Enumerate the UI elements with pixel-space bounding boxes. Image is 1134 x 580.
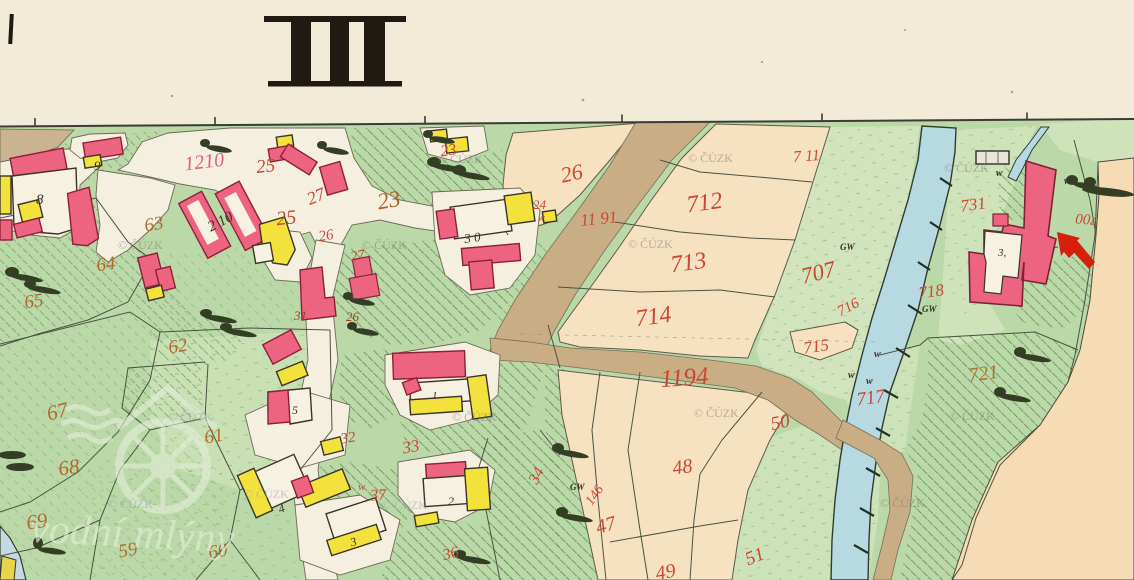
svg-text:5: 5 bbox=[292, 403, 298, 417]
svg-text:w: w bbox=[538, 213, 545, 224]
svg-text:© ČÚZK: © ČÚZK bbox=[244, 487, 289, 501]
svg-text:w: w bbox=[848, 370, 855, 381]
svg-text:49: 49 bbox=[654, 560, 678, 580]
svg-text:w: w bbox=[358, 481, 366, 493]
svg-text:© ČÚZK: © ČÚZK bbox=[880, 496, 925, 510]
svg-text:w: w bbox=[874, 349, 881, 360]
svg-text:713: 713 bbox=[669, 248, 708, 279]
svg-text:8: 8 bbox=[36, 192, 44, 208]
svg-text:© ČÚZK: © ČÚZK bbox=[118, 238, 163, 252]
svg-text:3,: 3, bbox=[997, 247, 1007, 259]
svg-text:712: 712 bbox=[685, 188, 724, 219]
svg-text:GW: GW bbox=[922, 304, 937, 314]
svg-text:3 0: 3 0 bbox=[462, 229, 482, 246]
svg-text:© ČÚZK: © ČÚZK bbox=[950, 409, 995, 423]
svg-text:26: 26 bbox=[346, 309, 360, 324]
svg-text:GW: GW bbox=[840, 242, 855, 252]
svg-text:24: 24 bbox=[533, 197, 547, 212]
svg-text:65: 65 bbox=[23, 290, 45, 313]
svg-text:31: 31 bbox=[293, 308, 307, 323]
svg-text:25: 25 bbox=[255, 155, 276, 178]
svg-text:2: 2 bbox=[448, 494, 454, 508]
svg-text:© ČÚZK: © ČÚZK bbox=[362, 238, 407, 252]
svg-text:33: 33 bbox=[400, 436, 421, 458]
svg-text:717: 717 bbox=[855, 386, 888, 411]
svg-text:w: w bbox=[996, 168, 1003, 179]
svg-text:1194: 1194 bbox=[659, 363, 709, 393]
svg-text:32: 32 bbox=[338, 429, 357, 448]
svg-text:© ČÚZK: © ČÚZK bbox=[694, 406, 739, 420]
svg-text:© ČÚZK: © ČÚZK bbox=[452, 410, 497, 424]
svg-text:9: 9 bbox=[94, 158, 101, 173]
svg-text:© ČÚZK: © ČÚZK bbox=[108, 497, 153, 511]
svg-text:23: 23 bbox=[375, 186, 402, 215]
svg-text:© ČÚZK: © ČÚZK bbox=[944, 161, 989, 175]
svg-text:25: 25 bbox=[275, 206, 297, 230]
svg-text:GW: GW bbox=[570, 482, 585, 492]
svg-text:715: 715 bbox=[802, 335, 830, 357]
svg-text:© ČÚZK: © ČÚZK bbox=[168, 410, 213, 424]
svg-text:7 11: 7 11 bbox=[793, 147, 821, 166]
svg-text:64: 64 bbox=[95, 253, 117, 277]
svg-text:700: 700 bbox=[1075, 210, 1099, 228]
svg-text:w: w bbox=[1064, 176, 1071, 187]
svg-text:714: 714 bbox=[634, 302, 673, 333]
svg-text:68: 68 bbox=[57, 454, 82, 481]
svg-text:1: 1 bbox=[432, 390, 438, 402]
svg-text:721: 721 bbox=[967, 361, 1000, 387]
svg-text:731: 731 bbox=[959, 193, 987, 215]
svg-text:63: 63 bbox=[143, 213, 165, 237]
svg-text:© ČÚZK: © ČÚZK bbox=[438, 152, 483, 166]
svg-text:© ČÚZK: © ČÚZK bbox=[628, 237, 673, 251]
svg-text:© ČÚZK: © ČÚZK bbox=[688, 151, 733, 165]
svg-text:718: 718 bbox=[917, 280, 945, 302]
svg-text:w: w bbox=[866, 376, 873, 387]
svg-text:11 91: 11 91 bbox=[579, 207, 618, 230]
svg-text:© ČÚZK: © ČÚZK bbox=[382, 498, 427, 512]
svg-text:48: 48 bbox=[671, 455, 694, 480]
